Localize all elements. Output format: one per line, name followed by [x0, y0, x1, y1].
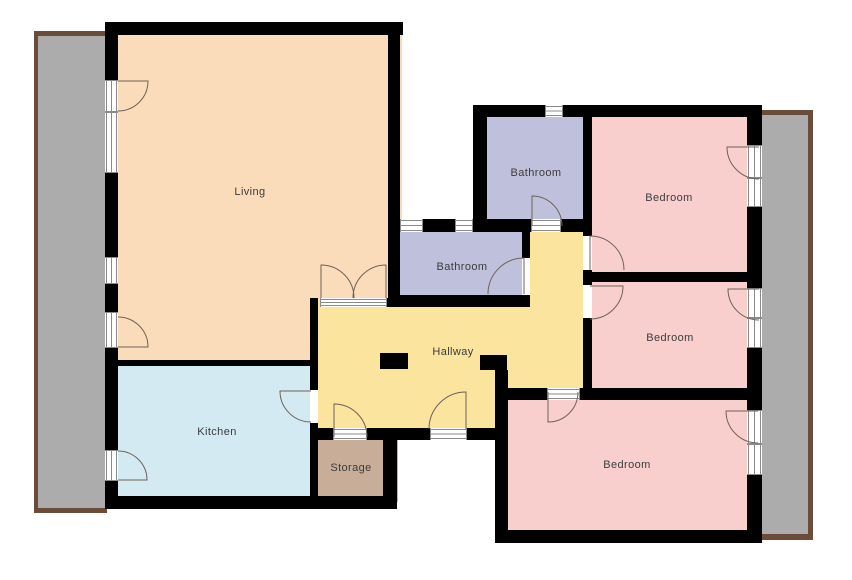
wall-segment [495, 400, 508, 543]
kitchen-balcony-door-frame [105, 450, 118, 481]
room-hallway-floor [314, 390, 499, 432]
room-hallway-floor [526, 224, 586, 304]
wall-segment [747, 207, 762, 288]
balcony-right-deck [762, 115, 808, 534]
wall-segment [400, 295, 530, 307]
wall-segment [583, 270, 592, 285]
room-living-floor [110, 28, 402, 308]
wall-segment [105, 496, 397, 509]
bathroom-mid-window-left-frame [400, 219, 423, 232]
living-window-lower-frame [105, 257, 118, 284]
floor-plan-drawing: LivingKitchenStorageHallwayBathroomBathr… [0, 0, 852, 580]
room-label-bedroom-top: Bedroom [645, 192, 692, 204]
room-label-bedroom-bottom: Bedroom [603, 459, 650, 471]
storage-doorway-frame [333, 428, 367, 440]
room-label-hallway: Hallway [432, 346, 473, 358]
wall-segment [583, 117, 592, 236]
wall-segment [495, 370, 508, 400]
kitchen-doorway [310, 390, 318, 423]
wall-segment [388, 22, 400, 307]
bathroom-top-doorway-frame [531, 219, 561, 232]
wall-segment [473, 105, 545, 117]
wall-segment [583, 318, 592, 388]
bathroom-mid-doorway [522, 258, 530, 295]
room-label-kitchen: Kitchen [197, 426, 237, 438]
room-living-floor [110, 300, 317, 365]
wall-segment [105, 284, 118, 312]
balcony-left-deck [38, 36, 107, 508]
wall-segment [480, 355, 507, 370]
wall-segment [423, 219, 455, 232]
bathroom-mid-window-right-frame [455, 219, 473, 232]
wall-segment [592, 272, 762, 282]
wall-segment [105, 360, 315, 366]
wall-segment [380, 353, 408, 369]
bedroom-top-doorway [583, 236, 592, 270]
room-label-living: Living [234, 186, 265, 198]
room-label-storage: Storage [330, 462, 371, 474]
bathroom-top-window-frame [545, 105, 563, 117]
wall-segment [105, 22, 403, 35]
room-label-bathroom-top: Bathroom [511, 167, 562, 179]
wall-segment [747, 348, 762, 410]
wall-segment [473, 117, 487, 219]
living-balcony-door-lower-frame [105, 312, 118, 348]
wall-segment [580, 388, 762, 400]
living-double-doorway-frame [320, 298, 387, 307]
wall-segment [522, 232, 530, 258]
wall-segment [105, 22, 118, 80]
wall-segment [473, 219, 531, 232]
wall-segment [747, 117, 762, 145]
room-label-bedroom-mid: Bedroom [646, 332, 693, 344]
entrance-doorway-frame [430, 428, 467, 440]
living-balcony-door-upper-frame [105, 80, 118, 112]
wall-segment [467, 428, 497, 440]
wall-segment [105, 173, 118, 257]
wall-segment [367, 428, 430, 440]
bedroom-bottom-doorway-frame [547, 388, 580, 400]
wall-segment [495, 530, 762, 543]
wall-segment [563, 105, 762, 117]
room-label-bathroom-mid: Bathroom [437, 261, 488, 273]
floor-plan-page: LivingKitchenStorageHallwayBathroomBathr… [0, 0, 852, 580]
bedroom-mid-doorway [583, 285, 592, 318]
wall-segment [310, 423, 318, 496]
living-window-upper-frame [105, 112, 118, 173]
wall-segment [310, 298, 318, 390]
wall-segment [387, 298, 400, 307]
